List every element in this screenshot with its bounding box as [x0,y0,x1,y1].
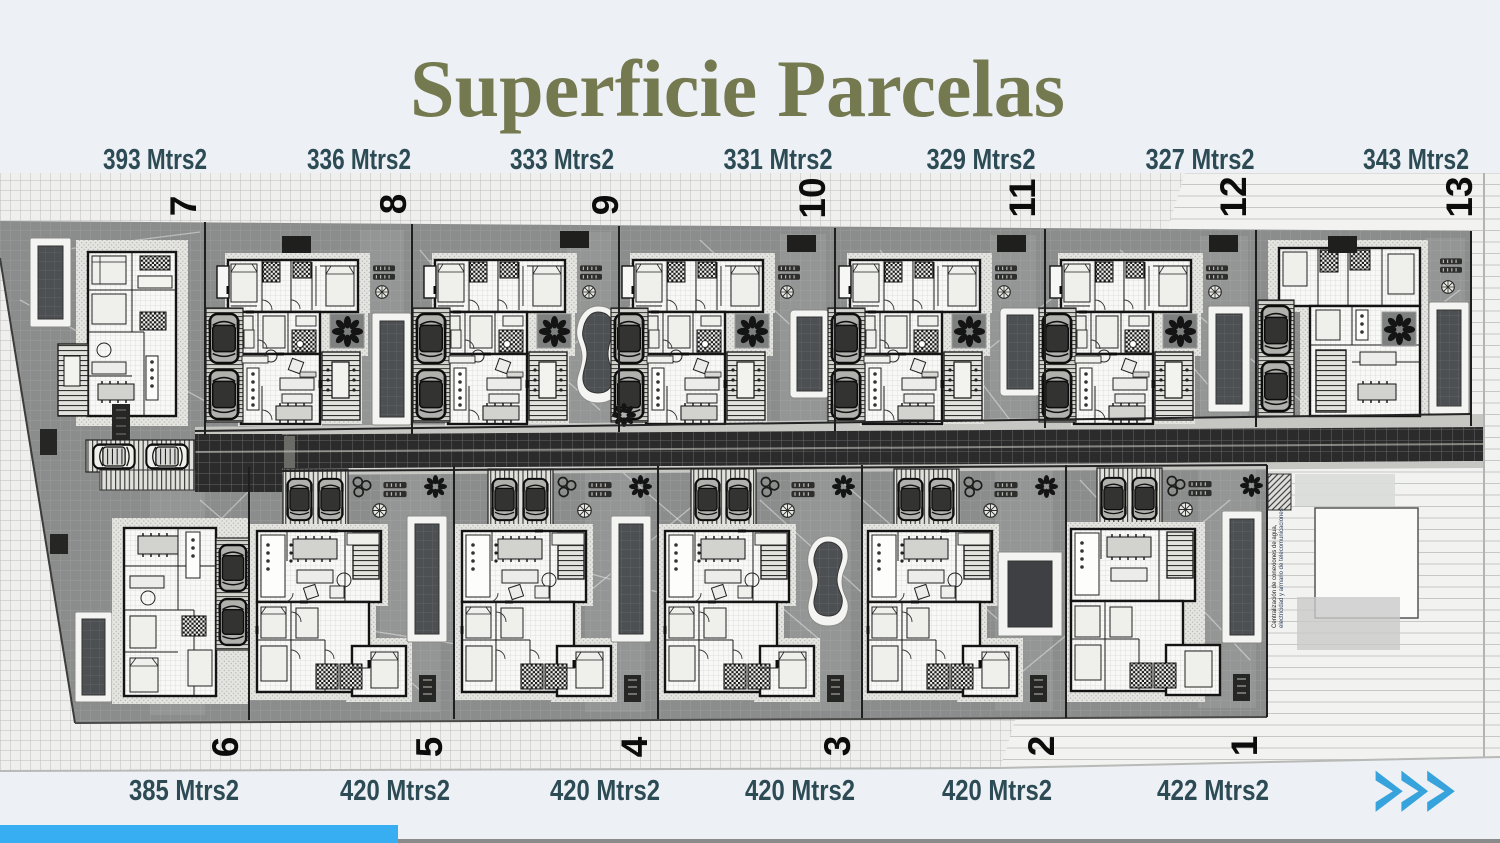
svg-text:5: 5 [409,737,450,758]
svg-text:6: 6 [205,737,246,758]
svg-text:Superficie Parcelas: Superficie Parcelas [410,43,1065,134]
svg-text:9: 9 [585,195,626,216]
svg-text:420 Mtrs2: 420 Mtrs2 [340,775,450,807]
svg-text:343 Mtrs2: 343 Mtrs2 [1363,144,1469,176]
svg-text:393 Mtrs2: 393 Mtrs2 [103,144,207,176]
svg-text:2: 2 [1021,736,1062,757]
svg-text:11: 11 [1002,178,1043,217]
svg-text:329 Mtrs2: 329 Mtrs2 [927,144,1036,176]
svg-text:327 Mtrs2: 327 Mtrs2 [1146,144,1255,176]
svg-text:385 Mtrs2: 385 Mtrs2 [129,775,239,807]
svg-text:336 Mtrs2: 336 Mtrs2 [307,144,411,176]
svg-text:13: 13 [1439,176,1480,217]
svg-text:1: 1 [1224,736,1265,757]
svg-text:333 Mtrs2: 333 Mtrs2 [510,144,614,176]
svg-text:420 Mtrs2: 420 Mtrs2 [550,775,660,807]
svg-text:7: 7 [163,196,204,217]
svg-text:331 Mtrs2: 331 Mtrs2 [724,144,833,176]
svg-text:3: 3 [817,736,858,757]
svg-text:422 Mtrs2: 422 Mtrs2 [1157,775,1269,807]
svg-text:420 Mtrs2: 420 Mtrs2 [942,775,1052,807]
svg-text:10: 10 [792,177,833,218]
svg-text:electricidad y armario de tele: electricidad y armario de telecomunicaci… [1279,508,1285,628]
svg-text:420 Mtrs2: 420 Mtrs2 [745,775,855,807]
svg-text:8: 8 [373,194,414,215]
svg-text:12: 12 [1213,176,1254,217]
svg-text:4: 4 [614,736,655,757]
svg-text:Centralización de conexiones d: Centralización de conexiones de agua, [1272,524,1278,628]
